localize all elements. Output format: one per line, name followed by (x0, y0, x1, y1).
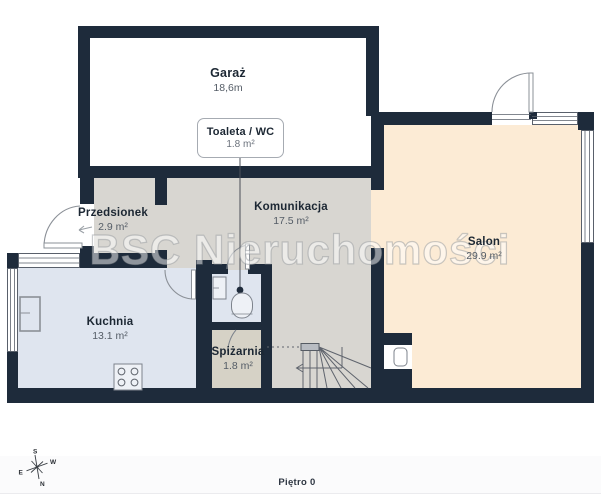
kitchen-left-window (7, 268, 18, 352)
room-label-kuchnia: Kuchnia 13.1 m² (87, 316, 134, 342)
wall-segment (155, 178, 167, 205)
room-label-spizarnia: Spiżarnia 1.8 m² (212, 346, 265, 372)
room-area: 18,6m (210, 82, 246, 94)
wall-segment (581, 243, 594, 388)
room-name: Przedsionek (78, 207, 148, 219)
floor-plan: S W E N BSC Nieruchomości Garaż 18,6m To… (0, 0, 601, 500)
room-area: 13.1 m² (87, 330, 134, 342)
wall-segment (7, 253, 18, 268)
wall-segment (7, 388, 594, 403)
wall-segment (78, 26, 379, 38)
salon-door (492, 73, 533, 112)
room-name: Salon (466, 236, 502, 248)
room-area: 1.8 m² (226, 139, 254, 150)
watermark: BSC Nieruchomości (90, 226, 511, 274)
salon-right-window (581, 130, 594, 243)
wall-segment (578, 112, 594, 130)
wall-segment (529, 112, 537, 119)
room-label-przedsionek: Przedsionek 2.9 m² (78, 207, 148, 233)
wall-segment (366, 26, 379, 116)
room-area: 17.5 m² (254, 215, 328, 227)
wall-segment (377, 112, 492, 125)
wall-segment (371, 345, 384, 390)
salon-top-window (532, 112, 578, 125)
floor-level-label: Piętro 0 (278, 477, 315, 488)
toilet-floor (212, 270, 261, 322)
room-area: 1.8 m² (212, 360, 265, 372)
wall-segment (196, 322, 272, 330)
kitchen-top-window (18, 253, 80, 268)
wall-segment (78, 26, 90, 178)
room-name: Komunikacja (254, 201, 328, 213)
compass-south-label: S (33, 449, 38, 456)
room-name: Spiżarnia (212, 346, 265, 358)
footer-band (0, 456, 601, 494)
room-label-garaz: Garaż 18,6m (210, 66, 246, 94)
salon-niche (384, 345, 412, 369)
room-name: Kuchnia (87, 316, 134, 328)
wall-segment (80, 178, 94, 204)
room-name: Toaleta / WC (207, 126, 275, 138)
room-area: 29.9 m² (466, 250, 502, 262)
room-label-toaleta: Toaleta / WC 1.8 m² (197, 118, 284, 158)
room-label-komunikacja: Komunikacja 17.5 m² (254, 201, 328, 227)
room-label-salon: Salon 29.9 m² (466, 236, 502, 262)
wall-segment (384, 369, 412, 390)
wall-segment (78, 166, 384, 178)
wall-segment (371, 333, 412, 345)
room-area: 2.9 m² (78, 221, 148, 233)
room-name: Garaż (210, 66, 246, 80)
